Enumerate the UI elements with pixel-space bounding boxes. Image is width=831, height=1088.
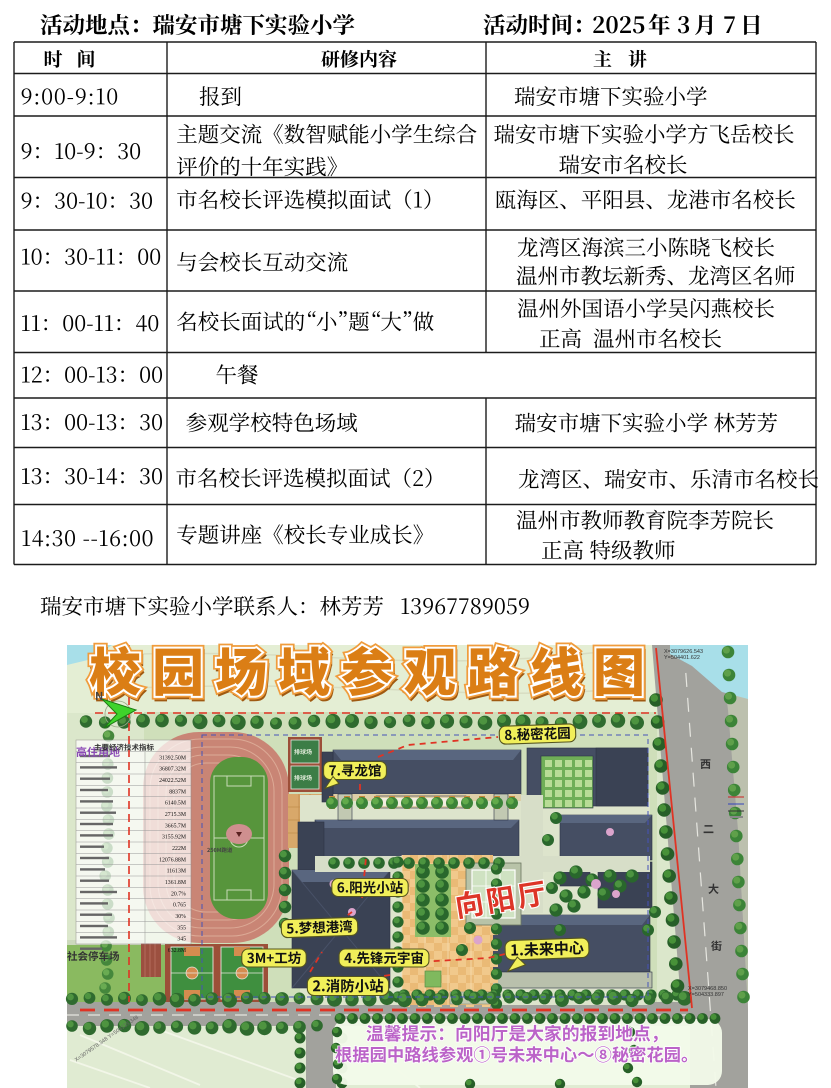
svg-text:222M: 222M xyxy=(172,846,186,852)
svg-text:3155.92M: 3155.92M xyxy=(162,835,186,841)
svg-text:2715.3M: 2715.3M xyxy=(165,812,186,818)
svg-text:0.765: 0.765 xyxy=(173,903,186,909)
svg-text:24022.52M: 24022.52M xyxy=(159,778,186,784)
svg-text:Y=504333.897: Y=504333.897 xyxy=(688,992,724,998)
svg-text:632.8M: 632.8M xyxy=(168,948,186,954)
svg-text:Y=504401.622: Y=504401.622 xyxy=(664,655,700,661)
svg-text:11613M: 11613M xyxy=(167,869,186,875)
svg-text:3665.7M: 3665.7M xyxy=(165,823,186,829)
svg-text:20.7%: 20.7% xyxy=(171,891,186,897)
svg-text:36807.32M: 36807.32M xyxy=(159,767,186,773)
svg-text:31392.50M: 31392.50M xyxy=(159,755,186,761)
svg-text:8837M: 8837M xyxy=(169,789,186,795)
svg-text:355: 355 xyxy=(177,925,186,931)
svg-text:12076.88M: 12076.88M xyxy=(159,857,186,863)
svg-text:1361.8M: 1361.8M xyxy=(165,880,186,886)
svg-text:6140.5M: 6140.5M xyxy=(165,801,186,807)
svg-text:345: 345 xyxy=(177,937,186,943)
svg-text:30%: 30% xyxy=(175,914,186,920)
